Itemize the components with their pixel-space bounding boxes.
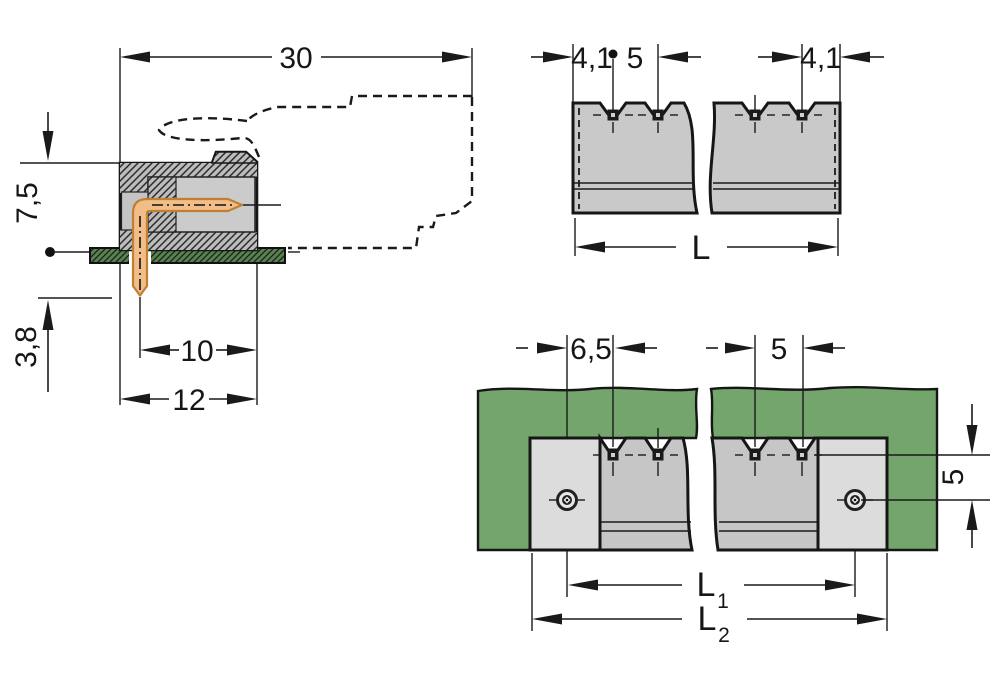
dim-front-depth: 10: [140, 335, 257, 368]
dim-L-label: L: [692, 229, 711, 267]
dim-4-1-left-label: 4,1: [571, 42, 613, 75]
dim-5-front-label: 5: [627, 42, 644, 75]
dim-7-5-label: 7,5: [11, 182, 44, 224]
dim-edge-to-pin-right: 4,1: [758, 42, 884, 75]
dim-hole-to-pin: 6,5: [516, 333, 657, 366]
dim-L1-sub-label: 1: [717, 590, 729, 613]
dim-5-board-label: 5: [771, 333, 788, 366]
housing-block-right: [710, 103, 840, 213]
dim-6-5-label: 6,5: [570, 333, 612, 366]
dim-height-above-board: 7,5: [11, 112, 122, 224]
datum-dot: [45, 247, 55, 257]
dim-housing-depth: 12: [120, 384, 257, 417]
dim-edge-to-pin-left: 4,1: [531, 42, 613, 75]
housing-block-left: [573, 103, 697, 213]
front-view: 4,1 5 4,1: [531, 42, 884, 267]
dim-overall-depth: 30: [120, 42, 472, 75]
dim-5-vertical-label: 5: [937, 469, 970, 486]
dim-overall-length-board: L 2: [532, 600, 887, 647]
dim-10-label: 10: [180, 335, 213, 368]
side-view: 30 7,5 3,8 10: [10, 42, 472, 417]
drawing-canvas: 30 7,5 3,8 10: [0, 0, 1000, 677]
dim-4-1-right-label: 4,1: [800, 42, 842, 75]
dim-3-8-label: 3,8: [10, 326, 43, 368]
dim-12-label: 12: [172, 384, 205, 417]
dim-pitch-board: 5: [706, 333, 845, 366]
dim-pin-below-board: 3,8: [10, 298, 112, 392]
dim-pitch-front: 5: [627, 42, 701, 75]
pcb-mounting-view: 6,5 5 5 L 1: [478, 333, 990, 647]
connector-dimension-drawing: 30 7,5 3,8 10: [0, 0, 1000, 677]
dim-L1-base-label: L: [697, 566, 716, 604]
dim-overall-length-front: L: [575, 218, 838, 267]
dim-L2-sub-label: 2: [718, 624, 730, 647]
dim-30-label: 30: [279, 42, 312, 75]
dim-L2-base-label: L: [698, 600, 717, 638]
